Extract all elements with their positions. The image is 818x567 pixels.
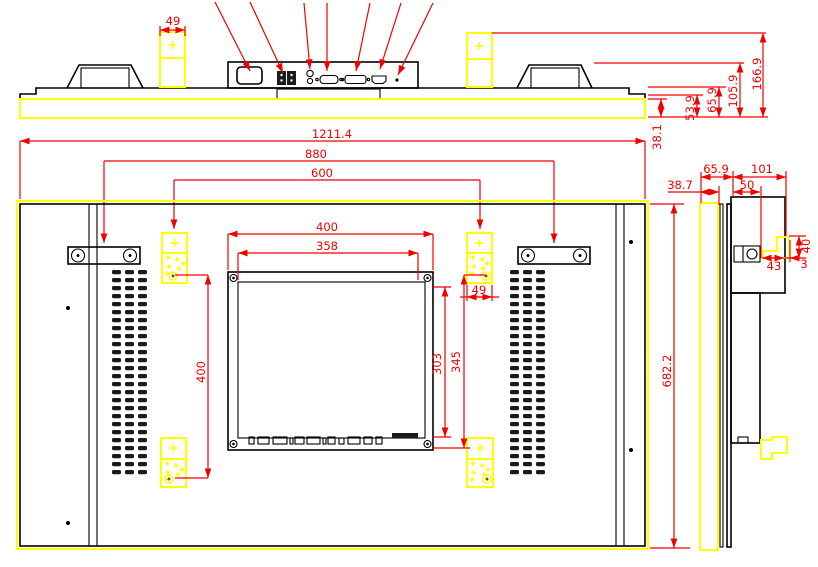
top-view-profile [20, 88, 645, 99]
side-mount-rail [731, 293, 760, 443]
mount-bracket-bottom-left [161, 438, 186, 487]
dim-mount-centers: 600 [311, 166, 333, 180]
dim-depth-handle: 105.9 [726, 75, 740, 108]
screw-dot [629, 240, 633, 244]
reset-hole [395, 78, 398, 81]
drawing-canvas: 38.1 53.9 65.9 105.9 166.9 49 1211.4 880… [0, 0, 818, 567]
dim-side-rail: 50 [740, 178, 755, 192]
side-dimensions: 65.9 101 38.7 50 43 3 40 [667, 162, 813, 273]
rear-handle-right [518, 247, 590, 264]
dim-side-body: 65.9 [703, 162, 729, 176]
dim-overall-width: 1211.4 [312, 127, 352, 141]
dim-module-opening-width: 358 [316, 239, 338, 253]
vga-port [316, 76, 342, 84]
dim-depth-total: 166.9 [750, 58, 764, 91]
dim-handle-centers: 880 [305, 147, 327, 161]
side-panel-glass [700, 203, 718, 550]
mount-bracket-bottom-right [467, 438, 493, 487]
dim-hook-width: 43 [767, 259, 782, 273]
dim-rear-bracket-width: 49 [472, 283, 487, 297]
dim-side-front: 38.7 [667, 178, 693, 192]
port-leader-lines [215, 2, 433, 75]
front-glass-band [20, 99, 645, 118]
dim-hook-height: 40 [799, 239, 813, 254]
top-view [20, 32, 645, 118]
rear-handle-left [68, 247, 140, 264]
side-view [700, 197, 789, 550]
dim-module-width: 400 [316, 220, 338, 234]
rear-bump [277, 89, 380, 99]
top-bracket-left [160, 32, 185, 87]
dim-opening-height: 303 [430, 353, 444, 375]
screw-dot [66, 306, 70, 310]
dim-side-box: 101 [751, 162, 773, 176]
screw-dot [629, 448, 633, 452]
depth-dimension-stack: 38.1 53.9 65.9 105.9 166.9 [492, 33, 768, 150]
io-ports [237, 67, 399, 85]
dim-hook-offset: 3 [800, 257, 807, 271]
screw-dot [66, 521, 70, 525]
dim-module-height: 345 [449, 351, 463, 373]
vent-grille-left [112, 270, 151, 476]
audio-jacks [307, 70, 313, 83]
dvi-port [341, 76, 369, 84]
dim-top-bracket-width-label: 49 [166, 14, 181, 28]
top-handle-left [67, 65, 143, 88]
dim-overall-height: 682.2 [660, 355, 674, 388]
dim-depth-body: 65.9 [705, 87, 719, 113]
hdmi-port [372, 76, 386, 84]
hook-bracket-bottom [761, 437, 787, 459]
technical-drawing: 38.1 53.9 65.9 105.9 166.9 49 1211.4 880… [0, 0, 818, 567]
dim-depth-front: 38.1 [650, 124, 664, 150]
pc-module [228, 272, 433, 450]
terminal-block [277, 71, 296, 85]
side-rail-foot [738, 437, 748, 443]
top-bracket-right [467, 33, 492, 87]
vent-grille-right [510, 270, 549, 476]
side-mount-ear [734, 246, 760, 262]
dim-mount-vertical: 400 [194, 361, 208, 383]
top-handle-right [517, 65, 592, 88]
side-chassis-front [720, 204, 723, 547]
dim-depth-step: 53.9 [683, 95, 697, 121]
